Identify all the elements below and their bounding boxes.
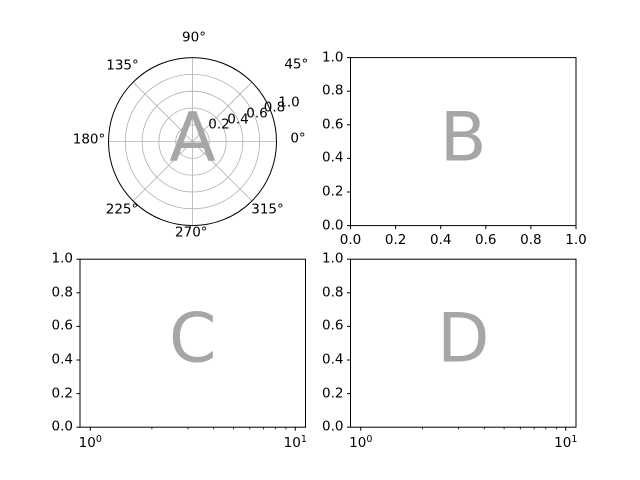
y-tick-label: 0.6 — [52, 318, 73, 335]
x-log-tick-label: 100 — [79, 434, 102, 452]
polar-theta-label: 135° — [106, 57, 139, 74]
log-base: 10 — [284, 435, 301, 451]
x-tick-label: 1.0 — [565, 232, 586, 249]
x-tick-label: 0.4 — [430, 232, 451, 249]
polar-theta-label: 270° — [175, 225, 208, 242]
y-tick-label: 0.0 — [322, 419, 343, 436]
y-tick-label: 0.6 — [322, 318, 343, 335]
x-log-tick-label: 100 — [349, 434, 372, 452]
panel-letter-b: B — [440, 104, 487, 172]
y-tick-label: 1.0 — [322, 49, 343, 66]
panel-letter-c: C — [169, 306, 216, 374]
x-tick-label: 0.0 — [340, 232, 361, 249]
y-tick-label: 1.0 — [322, 251, 343, 268]
log-exponent: 0 — [96, 434, 102, 445]
polar-theta-label: 90° — [182, 29, 206, 46]
panel-letter-a: A — [169, 104, 216, 172]
log-base: 10 — [349, 435, 366, 451]
log-exponent: 1 — [571, 434, 577, 445]
y-tick-label: 0.8 — [322, 284, 343, 301]
y-tick-label: 0.6 — [322, 116, 343, 133]
y-tick-label: 0.2 — [322, 184, 343, 201]
x-tick-label: 0.8 — [520, 232, 541, 249]
log-exponent: 0 — [366, 434, 372, 445]
polar-r-label: 1.0 — [278, 94, 299, 111]
y-tick-label: 0.2 — [52, 385, 73, 402]
x-tick-label: 0.2 — [385, 232, 406, 249]
x-log-tick-label: 101 — [554, 434, 577, 452]
log-base: 10 — [79, 435, 96, 451]
y-tick-label: 0.0 — [322, 217, 343, 234]
axes-artwork — [0, 0, 640, 480]
y-tick-label: 0.8 — [322, 83, 343, 100]
polar-theta-label: 0° — [290, 131, 305, 148]
y-tick-label: 0.4 — [322, 352, 343, 369]
log-base: 10 — [554, 435, 571, 451]
x-tick-label: 0.6 — [475, 232, 496, 249]
polar-theta-label: 45° — [284, 57, 308, 74]
polar-theta-label: 180° — [73, 132, 106, 149]
y-tick-label: 0.2 — [322, 385, 343, 402]
panel-letter-d: D — [437, 306, 489, 374]
log-exponent: 1 — [301, 434, 307, 445]
y-tick-label: 0.4 — [322, 150, 343, 167]
figure-canvas: 0° 45° 90° 135° 180° 225° 270° 315° 0.2 … — [0, 0, 640, 480]
y-tick-label: 1.0 — [52, 251, 73, 268]
polar-theta-label: 315° — [251, 201, 284, 218]
y-tick-label: 0.4 — [52, 352, 73, 369]
y-tick-label: 0.8 — [52, 284, 73, 301]
x-log-tick-label: 101 — [284, 434, 307, 452]
y-tick-label: 0.0 — [52, 419, 73, 436]
polar-theta-label: 225° — [106, 201, 139, 218]
